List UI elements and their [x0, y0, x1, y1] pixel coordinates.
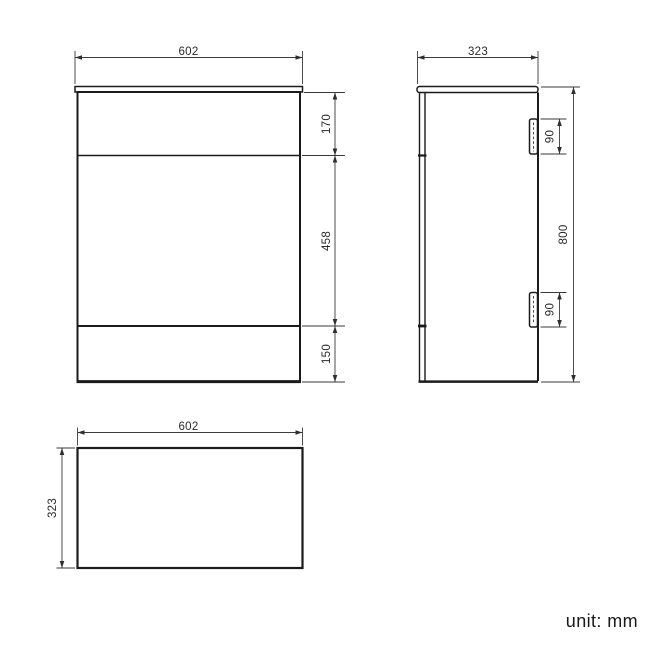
dim-arrow — [333, 326, 338, 333]
hinge-bottom-dimension: 90 — [541, 293, 567, 328]
front-view: 602 170 458 150 — [75, 46, 345, 382]
side-height-label: 800 — [558, 224, 570, 244]
dim-arrow — [78, 430, 85, 435]
dim-arrow — [557, 119, 562, 126]
unit-note: unit: mm — [566, 611, 638, 631]
hinge-top-icon — [530, 119, 538, 154]
dim-arrow — [75, 55, 82, 60]
top-depth-label: 323 — [47, 498, 59, 518]
dim-arrow — [296, 430, 303, 435]
hinge-bottom-icon — [530, 293, 538, 328]
dim-arrow — [296, 55, 303, 60]
dim-arrow — [333, 93, 338, 100]
top-view: 602 323 — [47, 421, 303, 568]
dim-arrow — [557, 293, 562, 300]
side-view: 323 800 90 90 — [417, 46, 580, 382]
top-width-label: 602 — [178, 421, 198, 433]
hinge-bottom-label: 90 — [545, 303, 557, 316]
side-depth-label: 323 — [468, 46, 488, 58]
front-width-label: 602 — [178, 46, 198, 58]
hinge-top-dimension: 90 — [541, 119, 567, 154]
drawing-svg: 602 170 458 150 — [0, 0, 650, 650]
front-door-section-label: 458 — [321, 231, 333, 251]
dim-arrow — [571, 375, 576, 382]
dim-arrow — [333, 156, 338, 163]
front-top-section-label: 170 — [321, 114, 333, 134]
dim-arrow — [333, 375, 338, 382]
dim-arrow — [571, 87, 576, 94]
dim-arrow — [333, 149, 338, 156]
front-cabinet-body — [78, 92, 301, 382]
top-width-dimension: 602 — [78, 421, 303, 446]
front-height-dimensions: 170 458 150 — [302, 93, 345, 383]
top-view-outline — [78, 448, 303, 568]
side-depth-dimension: 323 — [418, 46, 539, 84]
technical-drawing-page: 602 170 458 150 — [0, 0, 650, 650]
side-countertop — [417, 87, 538, 93]
hinge-top-label: 90 — [545, 130, 557, 143]
dim-arrow — [333, 319, 338, 326]
dim-arrow — [557, 320, 562, 327]
dim-arrow — [60, 561, 65, 568]
front-width-dimension: 602 — [75, 46, 303, 84]
front-plinth-label: 150 — [321, 344, 333, 364]
dim-arrow — [557, 147, 562, 154]
dim-arrow — [60, 448, 65, 455]
top-depth-dimension: 323 — [47, 448, 75, 568]
dim-arrow — [531, 55, 538, 60]
dim-arrow — [418, 55, 425, 60]
